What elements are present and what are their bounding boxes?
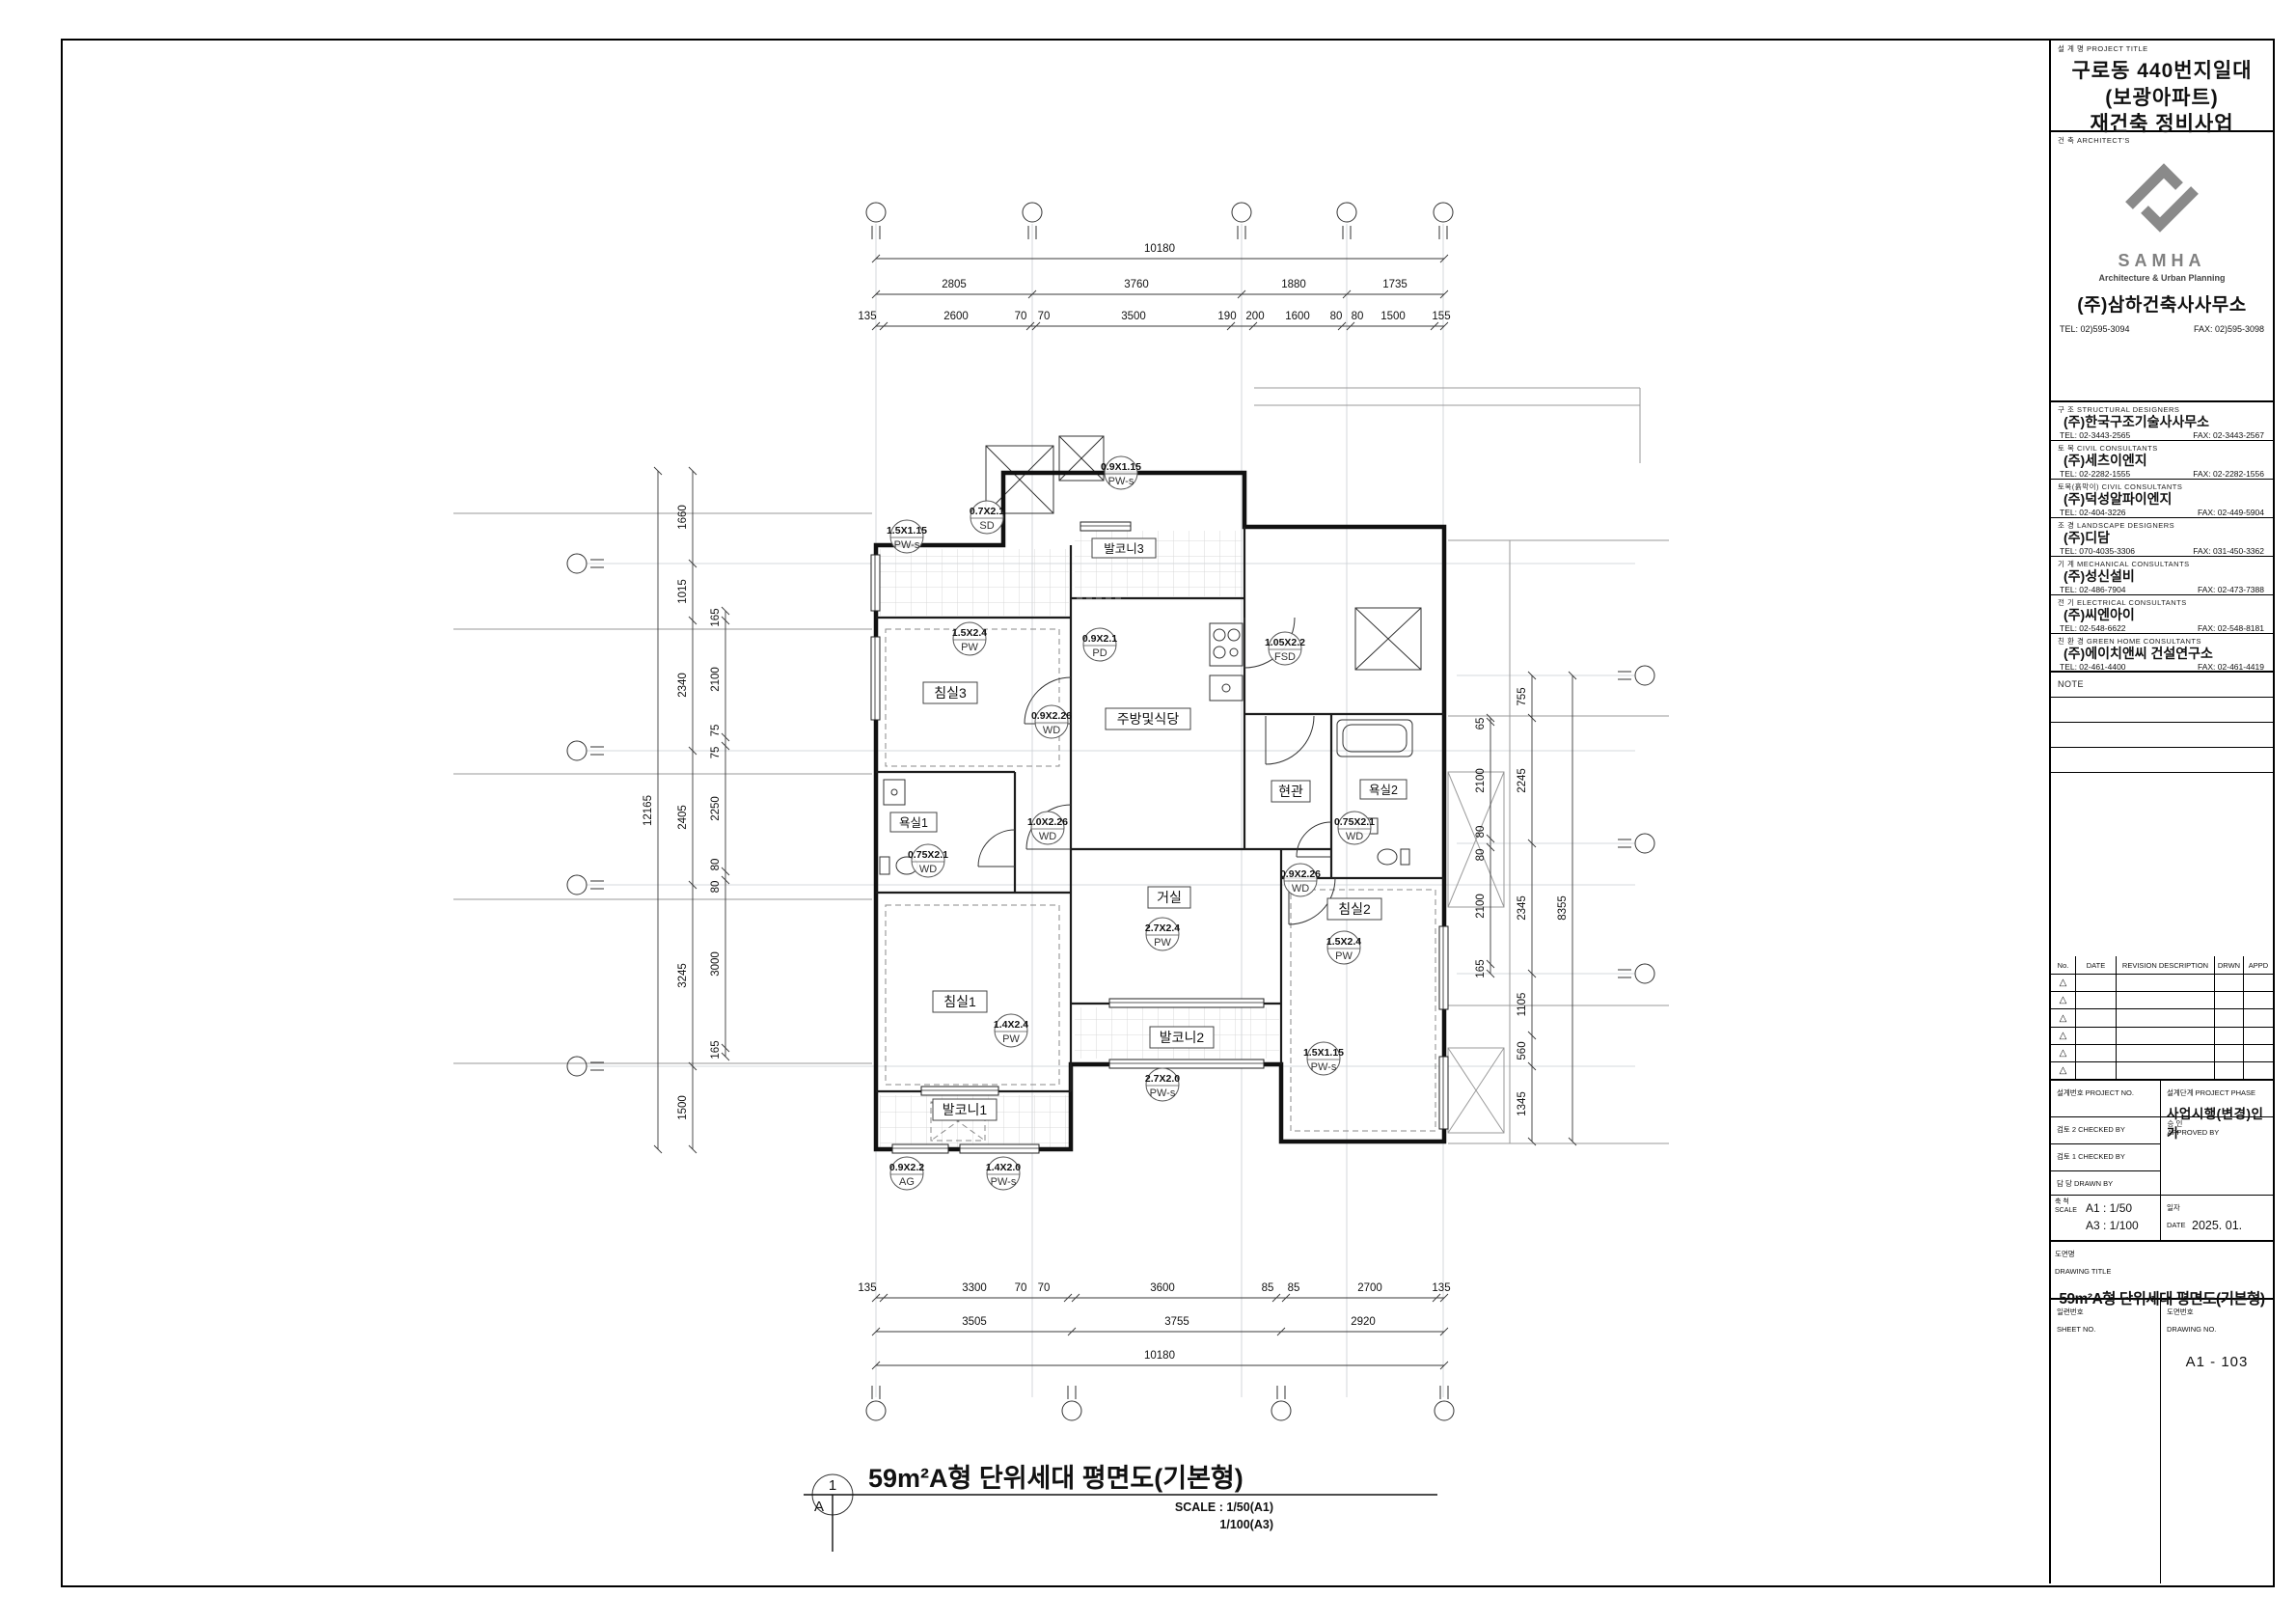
sheet-no-label-en: SHEET NO.	[2057, 1325, 2095, 1334]
svg-text:발코니3: 발코니3	[1104, 542, 1144, 556]
svg-text:PW: PW	[1335, 950, 1353, 962]
room-label-balcony2: 발코니2	[1150, 1027, 1214, 1048]
svg-text:침실1: 침실1	[943, 994, 976, 1009]
opening-tag: 0.9X2.1PD	[1082, 628, 1117, 661]
opening-tag: 1.5X2.4PW	[1326, 931, 1361, 964]
svg-text:발코니1: 발코니1	[943, 1102, 988, 1117]
svg-text:FSD: FSD	[1274, 651, 1296, 663]
svg-text:1.5X1.15: 1.5X1.15	[887, 525, 927, 537]
dimensions-right: 65 2100 80 80 2100 165 755 2245 2345 110…	[1475, 672, 1576, 1145]
scale-label-kr: 축 척	[2055, 1197, 2082, 1206]
dim-label: 2100	[1475, 894, 1487, 919]
caption-scale-2: 1/100(A3)	[1219, 1518, 1273, 1531]
consultant-civil-retaining: 토목(흙막이) CIVIL CONSULTANTS (주)덕성알파이엔지 TEL…	[2051, 480, 2273, 518]
consultant-structural: 구 조 STRUCTURAL DESIGNERS (주)한국구조기술사사무소 T…	[2051, 402, 2273, 441]
scale-label-en: SCALE	[2055, 1206, 2082, 1215]
svg-text:1.4X2.0: 1.4X2.0	[986, 1162, 1021, 1173]
scale-a3: A3 : 1/100	[2086, 1217, 2139, 1234]
note-section: NOTE	[2051, 673, 2273, 956]
consultant-landscape: 조 경 LANDSCAPE DESIGNERS (주)디담 TEL: 070-4…	[2051, 518, 2273, 557]
dim-label: 2600	[943, 311, 969, 322]
context-walls	[453, 388, 1669, 1143]
dim-label: 80	[1475, 826, 1487, 839]
dim-label: 2920	[1351, 1316, 1376, 1328]
room-label-entry: 현관	[1271, 781, 1310, 802]
triangle-marker-icon: △	[2051, 1062, 2076, 1079]
revision-table: No. DATE REVISION DESCRIPTION DRWN APPD …	[2051, 956, 2273, 1081]
svg-text:1.4X2.4: 1.4X2.4	[994, 1019, 1028, 1031]
svg-text:0.7X2.1: 0.7X2.1	[970, 506, 1004, 517]
svg-text:욕실2: 욕실2	[1369, 784, 1398, 797]
drawing-no-label-kr: 도면번호	[2167, 1307, 2194, 1316]
consultant-mechanical: 기 계 MECHANICAL CONSULTANTS (주)성신설비 TEL: …	[2051, 557, 2273, 595]
svg-text:거실: 거실	[1157, 890, 1182, 905]
approved-label-en: APPROVED BY	[2167, 1128, 2267, 1137]
architect-name: (주)삼하건축사사무소	[2058, 290, 2266, 317]
dim-label: 80	[710, 881, 722, 894]
svg-text:WD: WD	[1039, 831, 1056, 842]
svg-text:0.9X1.15: 0.9X1.15	[1101, 461, 1141, 473]
caption-scale-1: SCALE : 1/50(A1)	[1175, 1500, 1273, 1514]
drawing-title-section: 도면명DRAWING TITLE 59m²A형 단위세대 평면도(기본형)	[2051, 1242, 2273, 1300]
samha-wordmark: SAMHA	[2058, 251, 2266, 271]
dim-label: 165	[1475, 959, 1487, 977]
dim-label: 2250	[710, 796, 722, 821]
architect-section: 건 축 ARCHITECT'S SAMHA Architecture & Urb…	[2051, 132, 2273, 402]
svg-text:0.9X2.2: 0.9X2.2	[889, 1162, 924, 1173]
room-label-bath2: 욕실2	[1360, 780, 1407, 799]
dim-label: 755	[1517, 687, 1528, 705]
revision-row: △	[2051, 1062, 2273, 1079]
dim-label: 135	[858, 1282, 876, 1294]
sign-off-rows: 검토 2 CHECKED BY 검토 1 CHECKED BY 담 당 DRAW…	[2051, 1117, 2273, 1196]
dim-label: 80	[1352, 311, 1364, 322]
caption-number: 1	[829, 1477, 836, 1494]
opening-tag: 1.5X1.15PW-s	[887, 520, 927, 553]
opening-tag: 1.4X2.0PW-s	[986, 1157, 1021, 1190]
svg-text:PW-s: PW-s	[1108, 476, 1134, 487]
revision-row: △	[2051, 975, 2273, 992]
dim-label: 70	[1015, 311, 1027, 322]
consultant-electrical: 전 기 ELECTRICAL CONSULTANTS (주)씨엔아이 TEL: …	[2051, 595, 2273, 634]
svg-text:WD: WD	[919, 864, 937, 875]
project-title: 구로동 440번지일대 (보광아파트) 재건축 정비사업	[2058, 58, 2266, 138]
opening-tag: 2.7X2.0PW-s	[1145, 1068, 1180, 1101]
dim-label: 165	[710, 1040, 722, 1059]
dim-label: 80	[710, 859, 722, 871]
svg-text:침실3: 침실3	[934, 685, 967, 701]
dim-label: 3000	[710, 951, 722, 977]
floor-plan-svg: 10180 2805 3760 1880 1735 135 2600 70 70…	[0, 0, 2049, 1624]
dim-label: 1600	[1285, 311, 1310, 322]
dim-label: 2245	[1517, 768, 1528, 793]
dim-label: 70	[1038, 1282, 1051, 1294]
dim-label: 2345	[1517, 895, 1528, 921]
project-phase-label: 설계단계 PROJECT PHASE	[2167, 1088, 2255, 1097]
dim-label: 10180	[1144, 243, 1175, 255]
date-value: 2025. 01.	[2192, 1219, 2267, 1232]
dim-label: 3245	[677, 963, 689, 988]
drawing-no-value: A1 - 103	[2167, 1354, 2267, 1370]
svg-text:PW: PW	[961, 642, 978, 653]
svg-text:PW-s: PW-s	[991, 1176, 1017, 1188]
dim-label: 3760	[1124, 279, 1149, 290]
dim-label: 1105	[1517, 993, 1528, 1017]
room-label-balcony1: 발코니1	[933, 1099, 997, 1120]
opening-tag: 1.0X2.26WD	[1027, 812, 1068, 844]
triangle-marker-icon: △	[2051, 1009, 2076, 1026]
project-title-label: 설 계 명 PROJECT TITLE	[2058, 43, 2266, 54]
room-label-balcony3: 발코니3	[1092, 538, 1156, 558]
svg-text:침실2: 침실2	[1338, 901, 1371, 917]
drawing-sheet: { "title_block": { "project_title_label"…	[0, 0, 2296, 1624]
revision-row: △	[2051, 1045, 2273, 1062]
opening-tag: 0.75X2.1WD	[1334, 812, 1375, 844]
caption-letter: A	[814, 1499, 824, 1515]
dim-label: 75	[710, 747, 722, 759]
date-label-en: DATE	[2167, 1221, 2185, 1229]
dim-label: 2405	[677, 805, 689, 830]
opening-tag: 0.9X1.15PW-s	[1101, 456, 1141, 489]
dim-label: 1500	[677, 1095, 689, 1120]
dim-label: 70	[1015, 1282, 1027, 1294]
svg-text:1.05X2.2: 1.05X2.2	[1265, 637, 1305, 648]
dim-label: 75	[710, 725, 722, 737]
project-no-label: 설계번호 PROJECT NO.	[2057, 1088, 2134, 1097]
svg-text:1.5X2.4: 1.5X2.4	[1326, 936, 1361, 948]
dim-label: 3500	[1121, 311, 1146, 322]
dim-label: 1345	[1517, 1091, 1528, 1116]
consultant-greenhome: 친 환 경 GREEN HOME CONSULTANTS (주)에이치앤씨 건설…	[2051, 634, 2273, 673]
room-label-bedroom2: 침실2	[1327, 898, 1381, 920]
opening-tag: 2.7X2.4PW	[1145, 918, 1180, 950]
opening-tag: 0.9X2.26WD	[1031, 705, 1072, 738]
triangle-marker-icon: △	[2051, 1028, 2076, 1044]
dim-label: 85	[1288, 1282, 1300, 1294]
svg-text:PW: PW	[1002, 1033, 1020, 1045]
drawn-by-label: 담 당 DRAWN BY	[2057, 1179, 2113, 1188]
triangle-marker-icon: △	[2051, 992, 2076, 1008]
architects-label: 건 축 ARCHITECT'S	[2058, 135, 2266, 146]
room-label-bedroom1: 침실1	[933, 991, 987, 1012]
dim-label: 70	[1038, 311, 1051, 322]
dim-label: 1015	[677, 579, 689, 604]
sheet-no-label-kr: 일련번호	[2057, 1307, 2084, 1316]
revision-row: △	[2051, 992, 2273, 1009]
checked2-label: 검토 2 CHECKED BY	[2057, 1125, 2125, 1134]
svg-text:현관: 현관	[1278, 784, 1303, 799]
dim-label: 560	[1517, 1041, 1528, 1060]
svg-text:1.5X1.15: 1.5X1.15	[1303, 1047, 1344, 1059]
opening-tag: 1.5X1.15PW-s	[1303, 1042, 1344, 1075]
opening-tag: 1.5X2.4PW	[952, 622, 987, 655]
svg-text:SD: SD	[979, 520, 994, 532]
dim-label: 3600	[1150, 1282, 1175, 1294]
drawing-title-label-kr: 도면명	[2055, 1250, 2075, 1258]
svg-text:0.75X2.1: 0.75X2.1	[1334, 816, 1375, 828]
svg-text:주방및식당: 주방및식당	[1117, 711, 1180, 727]
dim-label: 1735	[1382, 279, 1408, 290]
opening-tag: 0.7X2.1SD	[970, 501, 1004, 534]
checked1-label: 검토 1 CHECKED BY	[2057, 1152, 2125, 1161]
grid-bubbles	[567, 203, 1654, 1420]
svg-text:0.75X2.1: 0.75X2.1	[908, 849, 948, 861]
room-label-bedroom3: 침실3	[923, 682, 977, 703]
triangle-marker-icon: △	[2051, 1045, 2076, 1061]
svg-text:1.0X2.26: 1.0X2.26	[1027, 816, 1068, 828]
scale-a1: A1 : 1/50	[2086, 1199, 2139, 1217]
dim-label: 2805	[942, 279, 967, 290]
dim-label: 10180	[1144, 1350, 1175, 1362]
grid-lines	[587, 224, 1635, 1397]
svg-text:2.7X2.0: 2.7X2.0	[1145, 1073, 1180, 1085]
revision-row: △	[2051, 1009, 2273, 1027]
dim-label: 2100	[710, 667, 722, 692]
dim-label: 80	[1330, 311, 1343, 322]
dim-label: 80	[1475, 849, 1487, 862]
dim-label: 85	[1262, 1282, 1274, 1294]
svg-text:WD: WD	[1043, 725, 1060, 736]
svg-text:발코니2: 발코니2	[1160, 1030, 1205, 1045]
consultant-civil: 토 목 CIVIL CONSULTANTS (주)세츠이엔지 TEL: 02-2…	[2051, 441, 2273, 480]
dim-label: 1500	[1380, 311, 1406, 322]
project-title-section: 설 계 명 PROJECT TITLE 구로동 440번지일대 (보광아파트) …	[2051, 41, 2273, 132]
dim-label: 3300	[962, 1282, 987, 1294]
dimensions-top: 10180 2805 3760 1880 1735 135 2600 70 70…	[858, 243, 1450, 330]
dimensions-left: 12165 1660 1015 2340 2405 3245 1500 165 …	[642, 467, 729, 1153]
svg-text:PW: PW	[1154, 937, 1171, 949]
dim-label: 2700	[1357, 1282, 1382, 1294]
dim-label: 3505	[962, 1316, 987, 1328]
caption-title: 59m²A형 단위세대 평면도(기본형)	[868, 1464, 1244, 1493]
dim-label: 135	[1432, 1282, 1450, 1294]
project-no-phase-row: 설계번호 PROJECT NO. 설계단계 PROJECT PHASE 사업시행…	[2051, 1081, 2273, 1117]
drawing-caption: 1 A 59m²A형 단위세대 평면도(기본형) SCALE : 1/50(A1…	[804, 1464, 1437, 1552]
svg-text:1.5X2.4: 1.5X2.4	[952, 627, 987, 639]
sheet-no-row: 일련번호SHEET NO. 도면번호DRAWING NO. A1 - 103	[2051, 1300, 2273, 1583]
drawing-no-label-en: DRAWING NO.	[2167, 1325, 2216, 1334]
revision-row: △	[2051, 1028, 2273, 1045]
title-block: 설 계 명 PROJECT TITLE 구로동 440번지일대 (보광아파트) …	[2049, 41, 2273, 1583]
svg-text:WD: WD	[1346, 831, 1363, 842]
svg-text:욕실1: 욕실1	[899, 816, 928, 830]
svg-text:0.9X2.26: 0.9X2.26	[1031, 710, 1072, 722]
triangle-marker-icon: △	[2051, 975, 2076, 991]
svg-text:0.9X2.26: 0.9X2.26	[1280, 868, 1321, 880]
opening-tag: 0.9X2.26WD	[1280, 864, 1321, 896]
fixtures	[880, 623, 1412, 874]
dim-label: 12165	[642, 795, 654, 826]
svg-text:PW-s: PW-s	[1150, 1087, 1176, 1099]
dim-label: 65	[1475, 718, 1487, 730]
svg-text:WD: WD	[1292, 883, 1309, 895]
room-label-bath1: 욕실1	[890, 812, 937, 832]
note-label: NOTE	[2051, 676, 2091, 692]
svg-text:2.7X2.4: 2.7X2.4	[1145, 922, 1180, 934]
dim-label: 2340	[677, 673, 689, 698]
room-label-kitchen-dining: 주방및식당	[1106, 708, 1190, 729]
dim-label: 155	[1432, 311, 1450, 322]
svg-text:AG: AG	[899, 1176, 915, 1188]
scale-date-row: 축 척 SCALE A1 : 1/50 A3 : 1/100 일자DATE 20…	[2051, 1196, 2273, 1242]
dim-label: 1660	[677, 505, 689, 530]
dim-label: 1880	[1281, 279, 1306, 290]
approved-label-kr: 승 인	[2167, 1119, 2267, 1128]
svg-text:0.9X2.1: 0.9X2.1	[1082, 633, 1117, 645]
samha-tagline: Architecture & Urban Planning	[2058, 273, 2266, 283]
dim-label: 3755	[1164, 1316, 1189, 1328]
dim-label: 135	[858, 311, 876, 322]
svg-text:PD: PD	[1092, 647, 1107, 659]
architect-telfax: TEL: 02)595-3094FAX: 02)595-3098	[2058, 324, 2266, 334]
dim-label: 165	[710, 608, 722, 626]
dimensions-bottom: 135 3300 70 70 3600 85 85 2700 135 3505 …	[858, 1282, 1450, 1369]
opening-tag: 0.9X2.2AG	[889, 1157, 924, 1190]
svg-text:PW-s: PW-s	[894, 539, 920, 551]
samha-logo-icon	[2058, 151, 2266, 249]
date-label-kr: 일자	[2167, 1203, 2180, 1212]
dim-label: 8355	[1557, 895, 1569, 921]
dim-label: 2100	[1475, 768, 1487, 793]
dim-label: 200	[1245, 311, 1264, 322]
room-label-living: 거실	[1148, 887, 1190, 908]
opening-tag: 1.4X2.4PW	[994, 1014, 1028, 1047]
dim-label: 190	[1217, 311, 1236, 322]
drawing-title-label-en: DRAWING TITLE	[2055, 1267, 2111, 1276]
svg-text:PW-s: PW-s	[1311, 1061, 1337, 1073]
